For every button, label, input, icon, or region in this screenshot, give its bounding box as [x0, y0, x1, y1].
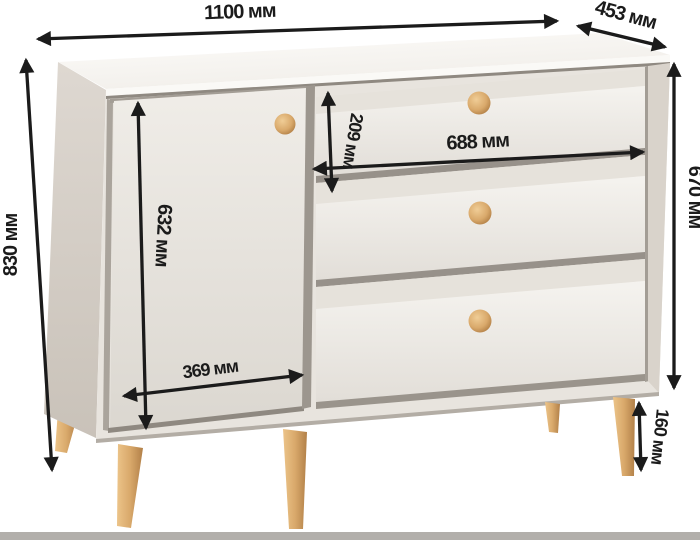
- dimension-label-height: 830 мм: [0, 214, 22, 277]
- dimension-arrow-leg-height: [639, 403, 641, 470]
- floor-strip: [0, 532, 700, 540]
- drawer-1-knob: [468, 92, 491, 115]
- dimension-label-door-height: 632 мм: [150, 204, 175, 268]
- drawer-2-knob: [469, 202, 492, 225]
- product-dimensions-screenshot: 1100 мм 453 мм 830 мм 670 мм 209 мм 688 …: [0, 0, 700, 540]
- dimension-label-width: 1100 мм: [204, 0, 276, 24]
- door-knob: [275, 114, 296, 135]
- dimension-label-side-height: 670 мм: [684, 166, 700, 229]
- dimension-label-drawer-width: 688 мм: [446, 129, 510, 154]
- commode-dimensions-diagram: 1100 мм 453 мм 830 мм 670 мм 209 мм 688 …: [0, 0, 700, 540]
- drawer-3-knob: [469, 310, 492, 333]
